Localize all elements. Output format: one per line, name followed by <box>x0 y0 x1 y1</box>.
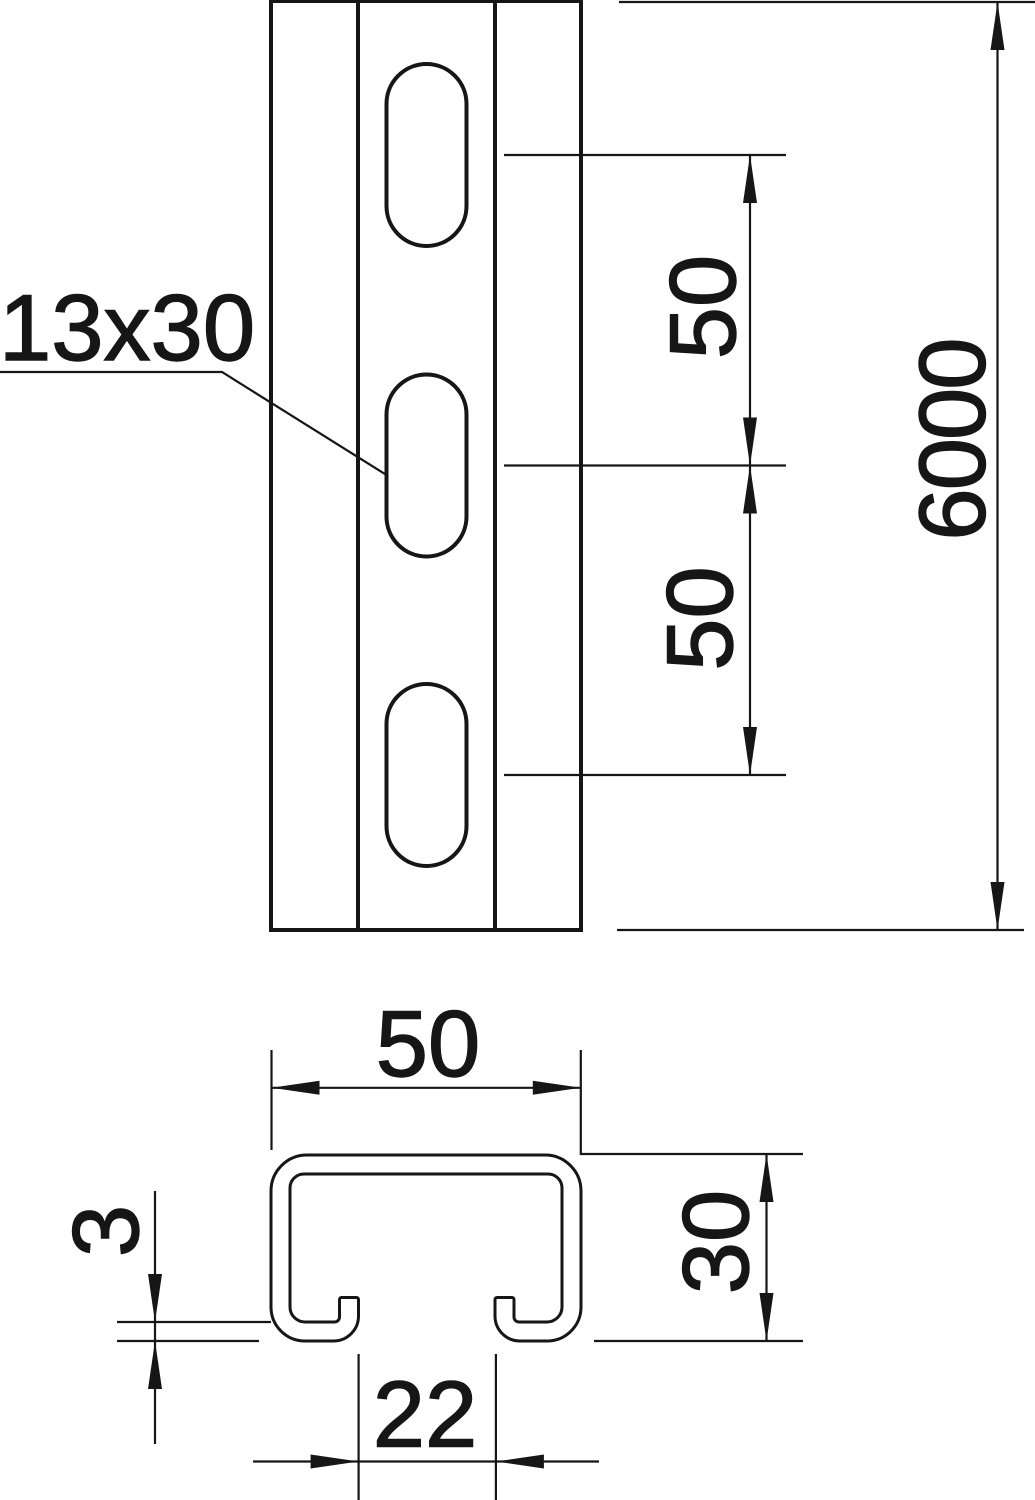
svg-text:22: 22 <box>373 1362 478 1467</box>
svg-text:50: 50 <box>647 566 752 671</box>
svg-text:13x30: 13x30 <box>0 275 255 380</box>
svg-text:30: 30 <box>663 1190 768 1295</box>
svg-text:50: 50 <box>376 991 481 1096</box>
svg-text:3: 3 <box>53 1205 158 1257</box>
svg-text:6000: 6000 <box>900 339 1005 540</box>
svg-text:50: 50 <box>650 255 755 360</box>
